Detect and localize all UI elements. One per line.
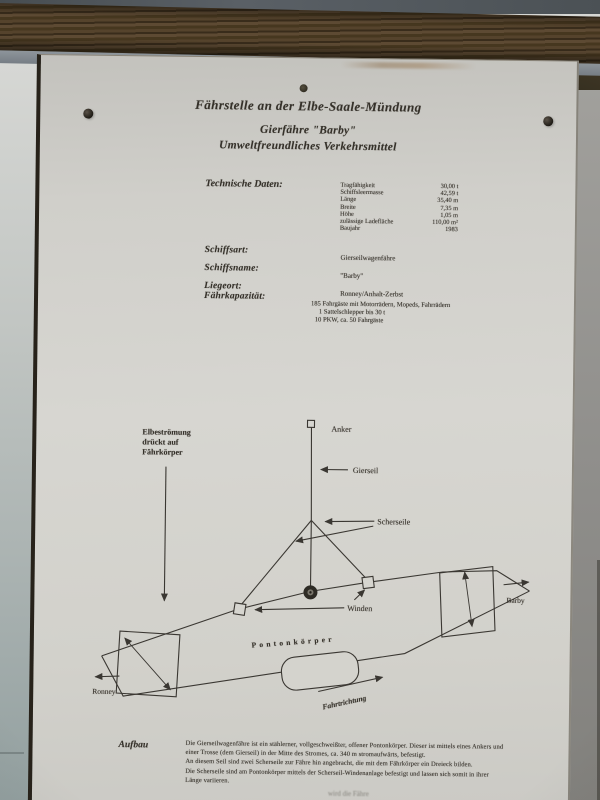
ramp-right-double-arrow (464, 572, 473, 626)
winden-pointer-arrow-left (255, 607, 344, 611)
sign-board: Fährstelle an der Elbe-Saale-Mündung Gie… (27, 54, 579, 800)
table-row: Baujahr1983 (340, 225, 458, 234)
detail-value: Gierseilwagenfähre (340, 252, 395, 263)
diagram-wheel (303, 585, 317, 599)
aufbau-paragraph: Die Gierseilwagenfähre ist ein stählerne… (185, 739, 503, 789)
label-fahrtrichtung: Fahrtrichtung (322, 693, 368, 711)
label-ronney: Ronney (92, 687, 116, 696)
technical-data-table: Tragfähigkeit30,00 t Schiffsleermasse42,… (340, 182, 459, 234)
detail-label: Schiffsart: (205, 245, 341, 257)
scherseil-left (237, 519, 311, 610)
rust-stain (341, 62, 476, 70)
capacity-lines: 185 Fahrgäste mit Motorrädern, Mopeds, F… (311, 300, 451, 326)
capacity-label: Fährkapazität: (204, 291, 266, 302)
winch-left (233, 603, 246, 616)
photo-of-ferry-info-sign: Fährstelle an der Elbe-Saale-Mündung Gie… (0, 0, 600, 800)
diagram-lines (95, 418, 531, 701)
aufbau-heading: Aufbau (119, 740, 149, 750)
scherseile-pointer-arrow-1 (325, 521, 374, 523)
winch-right (362, 576, 374, 588)
cutoff-text-line: wird die Fähre (328, 790, 369, 798)
detail-value: Ronney/Anhalt-Zerbst (340, 288, 403, 299)
label-pontonkoerper: Pontonkörper (251, 634, 335, 649)
screw-top-right (543, 116, 553, 126)
label-stroemung-2: drückt auf (142, 437, 179, 446)
scherseil-right (311, 520, 371, 582)
winden-pointer-arrow-right (354, 590, 364, 600)
detail-label: Schiffsname: (204, 263, 340, 275)
label-stroemung-3: Fährkörper (142, 447, 183, 456)
sign-title: Fährstelle an der Elbe-Saale-Mündung (40, 95, 576, 118)
detail-value: "Barby" (340, 270, 363, 280)
ramp-left-double-arrow (124, 638, 171, 690)
gierseil-cable (309, 427, 312, 590)
sign-subtitle-ferry-name: Gierfähre "Barby" (40, 121, 576, 140)
label-scherseile: Scherseile (377, 517, 410, 526)
scherseile-pointer-arrow-2 (296, 525, 373, 542)
label-winden: Winden (347, 604, 372, 613)
sign-subtitle-eco: Umweltfreundliches Verkehrsmittel (40, 137, 576, 156)
tech-value: 1983 (412, 226, 458, 234)
technical-data-heading: Technische Daten: (205, 178, 282, 190)
ferry-schematic-diagram: Elbeströmung drückt auf Fährkörper Anker… (91, 416, 555, 722)
ramp-right (439, 566, 496, 638)
label-anker: Anker (331, 425, 351, 434)
label-gierseil: Gierseil (353, 466, 379, 475)
label-stroemung-1: Elbeströmung (142, 427, 191, 437)
label-barby: Barby (506, 596, 525, 605)
tech-label: Baujahr (340, 225, 412, 233)
nail-hole-top-center (300, 84, 308, 92)
wall-tile-seam (0, 752, 24, 754)
capacity-line: 10 PKW, ca. 50 Fahrgäste (311, 316, 450, 326)
ronney-direction-arrow (95, 676, 119, 677)
anchor-symbol (307, 420, 314, 427)
current-flow-arrow (164, 467, 166, 601)
